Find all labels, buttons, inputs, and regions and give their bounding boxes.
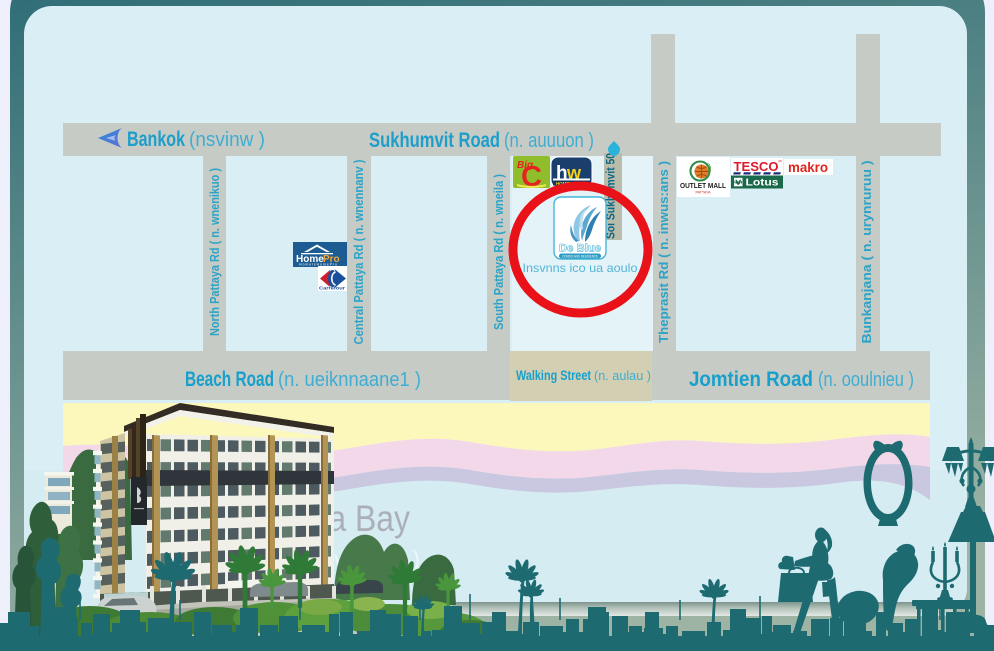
svg-text:Jomtien Road: Jomtien Road xyxy=(689,368,813,391)
svg-text:Theprasit Rd ( n. inwus:ans ): Theprasit Rd ( n. inwus:ans ) xyxy=(657,161,671,343)
svg-text:PATTAYA: PATTAYA xyxy=(695,191,711,195)
svg-text:Lotus: Lotus xyxy=(746,177,779,189)
svg-text:OUTLET MALL: OUTLET MALL xyxy=(680,183,727,190)
svg-text:Insvnns ico ua aoulo: Insvnns ico ua aoulo xyxy=(523,261,638,275)
svg-text:Walking Street: Walking Street xyxy=(516,368,591,383)
svg-text:Bankok: Bankok xyxy=(127,128,185,151)
svg-text:(n. aulau ): (n. aulau ) xyxy=(594,368,651,383)
svg-text:Bunkanjana ( n. urynruruu ): Bunkanjana ( n. urynruruu ) xyxy=(860,161,874,344)
svg-text:Sukhumvit Road: Sukhumvit Road xyxy=(369,129,500,152)
svg-text:(n. ooulnieu ): (n. ooulnieu ) xyxy=(818,369,914,391)
svg-text:(nsvinw ): (nsvinw ) xyxy=(189,129,265,151)
svg-text:makro: makro xyxy=(788,160,828,175)
svg-text:CONDO AND RESIDENCE: CONDO AND RESIDENCE xyxy=(562,255,598,259)
svg-text:C: C xyxy=(521,161,542,193)
svg-text:TESCO: TESCO xyxy=(734,160,779,174)
svg-text:(R): (R) xyxy=(778,159,782,163)
svg-text:(n. ueiknnaane1 ): (n. ueiknnaane1 ) xyxy=(278,369,421,391)
svg-text:De Blue: De Blue xyxy=(559,243,601,255)
svg-text:Carrefour: Carrefour xyxy=(319,286,345,291)
svg-text:Central Pattaya Rd ( n. wnenna: Central Pattaya Rd ( n. wnennanv ) xyxy=(352,160,366,345)
svg-text:North Pattaya Rd ( n. wnenikuo: North Pattaya Rd ( n. wnenikuo ) xyxy=(208,168,222,336)
svg-text:(n. auuuon ): (n. auuuon ) xyxy=(504,130,594,152)
svg-text:South Pattaya Rd ( n. wneila ): South Pattaya Rd ( n. wneila ) xyxy=(492,174,506,330)
svg-text:Beach Road: Beach Road xyxy=(185,368,274,391)
